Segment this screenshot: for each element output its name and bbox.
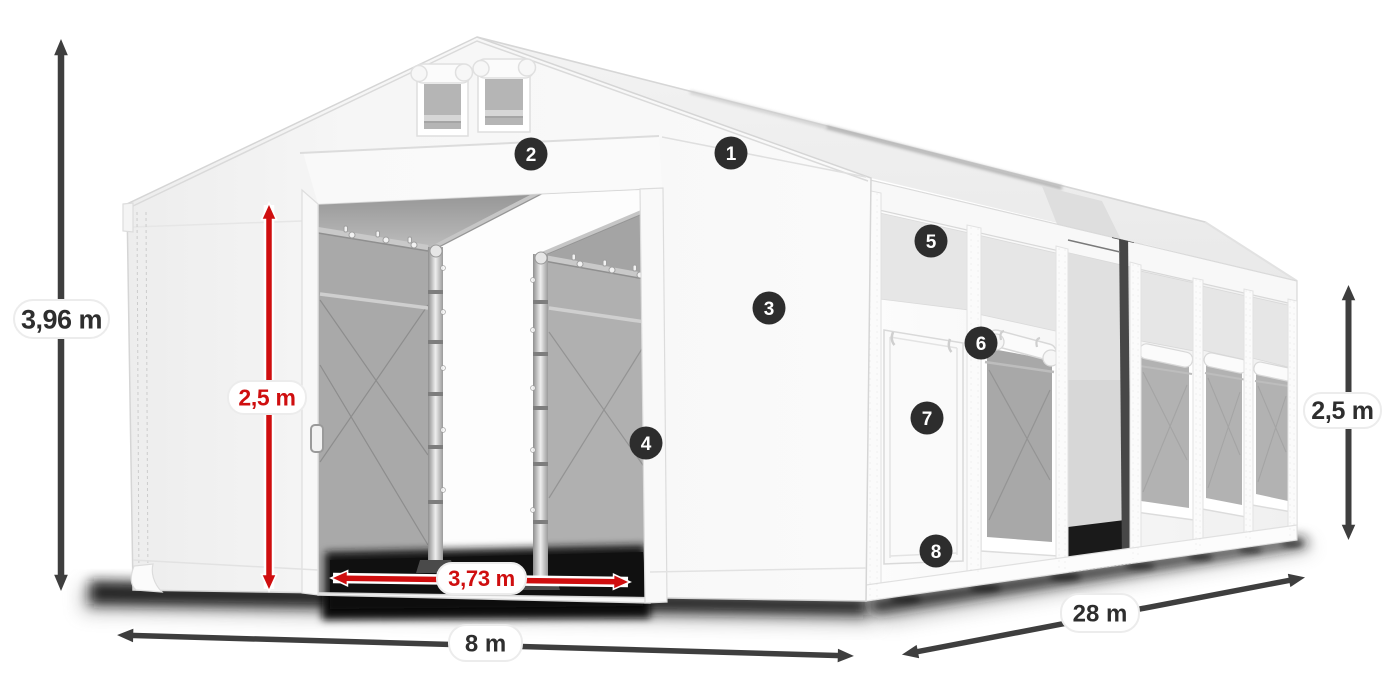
svg-text:5: 5: [926, 232, 937, 253]
svg-text:7: 7: [922, 409, 933, 430]
svg-text:8: 8: [931, 542, 942, 563]
svg-text:2: 2: [526, 145, 537, 166]
svg-text:28 m: 28 m: [1073, 601, 1128, 628]
svg-text:6: 6: [976, 334, 987, 355]
svg-text:4: 4: [641, 434, 652, 455]
svg-text:1: 1: [726, 144, 737, 165]
svg-text:3,96 m: 3,96 m: [21, 305, 102, 335]
svg-text:2,5 m: 2,5 m: [238, 385, 295, 411]
svg-text:3,73 m: 3,73 m: [448, 566, 515, 591]
svg-text:2,5 m: 2,5 m: [1311, 397, 1373, 425]
svg-text:8 m: 8 m: [465, 631, 506, 658]
svg-text:3: 3: [764, 299, 775, 320]
